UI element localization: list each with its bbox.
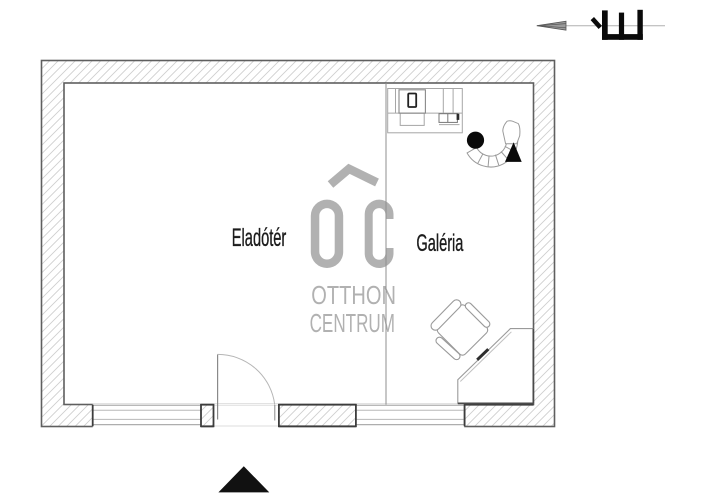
svg-text:Eladótér: Eladótér bbox=[232, 224, 286, 252]
svg-text:OTTHON: OTTHON bbox=[311, 280, 396, 310]
svg-text:Galéria: Galéria bbox=[416, 230, 463, 257]
svg-text:CENTRUM: CENTRUM bbox=[310, 308, 395, 338]
